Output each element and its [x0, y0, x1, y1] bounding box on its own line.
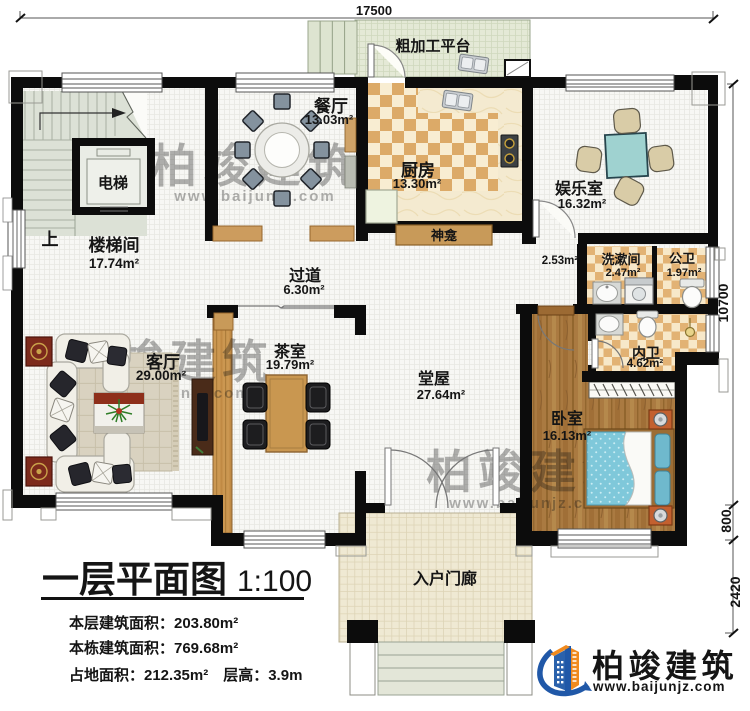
svg-text:堂屋: 堂屋 [418, 369, 450, 388]
svg-text:2.53m²: 2.53m² [542, 255, 579, 267]
svg-text:本层建筑面积：203.80m²: 本层建筑面积：203.80m² [69, 614, 238, 632]
svg-text:www.baijunjz.com: www.baijunjz.com [592, 679, 726, 694]
svg-text:1.97m²: 1.97m² [667, 267, 702, 279]
svg-text:粗加工平台: 粗加工平台 [395, 37, 470, 55]
svg-text:2420: 2420 [727, 576, 743, 607]
svg-text:公卫: 公卫 [669, 251, 695, 266]
svg-text:17500: 17500 [356, 3, 392, 18]
svg-text:上: 上 [42, 230, 59, 249]
svg-text:29.00m²: 29.00m² [136, 368, 187, 383]
svg-text:6.30m²: 6.30m² [283, 282, 325, 297]
svg-text:入户门廊: 入户门廊 [413, 569, 477, 588]
svg-text:27.64m²: 27.64m² [417, 387, 466, 402]
svg-text:1:100: 1:100 [237, 565, 312, 598]
svg-text:www.baijunjz.com: www.baijunjz.com [173, 188, 335, 205]
svg-text:本栋建筑面积：769.68m²: 本栋建筑面积：769.68m² [69, 639, 238, 657]
svg-text:楼梯间: 楼梯间 [89, 235, 140, 255]
svg-text:16.13m²: 16.13m² [543, 428, 592, 443]
svg-text:电梯: 电梯 [98, 174, 128, 192]
svg-text:4.62m²: 4.62m² [627, 358, 664, 370]
svg-text:17.74m²: 17.74m² [89, 256, 140, 271]
svg-text:10700: 10700 [715, 283, 731, 322]
svg-text:洗漱间: 洗漱间 [601, 252, 640, 267]
svg-text:神龛: 神龛 [431, 228, 458, 243]
svg-text:19.79m²: 19.79m² [266, 357, 315, 372]
svg-text:13.03m²: 13.03m² [305, 112, 354, 127]
svg-text:16.32m²: 16.32m² [558, 196, 607, 211]
svg-text:800: 800 [718, 509, 734, 533]
svg-text:13.30m²: 13.30m² [393, 176, 442, 191]
svg-text:卧室: 卧室 [551, 409, 583, 428]
svg-text:占地面积：212.35m² 层高：3.9m: 占地面积：212.35m² 层高：3.9m [69, 666, 302, 684]
svg-text:一层平面图: 一层平面图 [42, 559, 227, 600]
svg-text:2.47m²: 2.47m² [606, 267, 641, 279]
